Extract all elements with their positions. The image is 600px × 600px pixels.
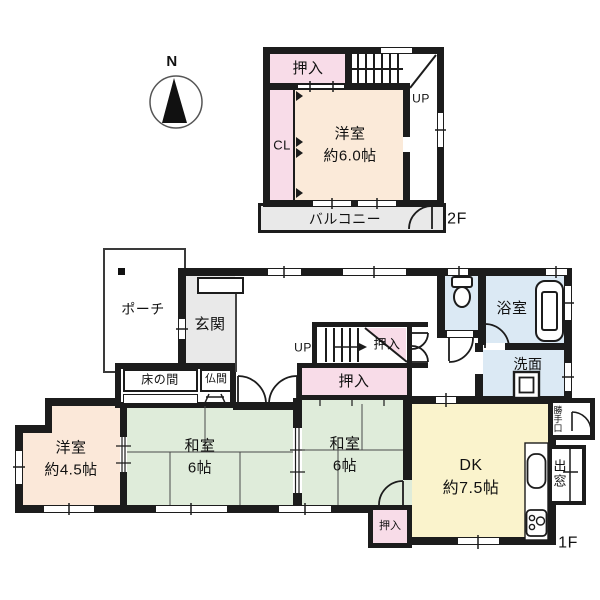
room-name: 和室 (329, 433, 360, 455)
room-size: 約7.5帖 (443, 477, 500, 500)
room-label-western-1f: 洋室 約4.5帖 (44, 437, 97, 481)
room-label-cl: CL (273, 137, 291, 156)
room-size: 約6.0帖 (323, 145, 376, 167)
room-size: 6帖 (329, 455, 360, 477)
shoe-cabinet (197, 277, 244, 294)
window (267, 268, 302, 276)
window (178, 318, 186, 340)
window (342, 268, 407, 276)
floor-plan: N 押入 CL 洋室 約6.0帖 UP バルコニー 2F ポーチ 玄関 床の間 … (0, 0, 600, 600)
room-size: 6帖 (184, 457, 215, 479)
room-label-dk: DK 約7.5帖 (443, 454, 500, 500)
floor-label-1f: 1F (558, 531, 578, 554)
balcony-label: バルコニー (309, 209, 381, 229)
wall (412, 322, 428, 327)
window (564, 285, 572, 321)
sliding-door-opening (120, 437, 127, 472)
room-label-japanese-west: 和室 6帖 (184, 435, 215, 479)
porch-label: ポーチ (121, 299, 165, 319)
stairs-up-label-1f: UP (294, 339, 312, 356)
bathroom-label: 浴室 (496, 298, 527, 320)
sliding-door-oshiire-2f (297, 84, 345, 89)
window (15, 450, 23, 485)
back-door-label: 勝手口 (552, 406, 565, 433)
wall (403, 396, 412, 480)
room-label-japanese-east: 和室 6帖 (329, 433, 360, 477)
door-opening-dk (436, 397, 456, 403)
room-name: 洋室 (323, 123, 376, 145)
tokonoma-label: 床の間 (141, 371, 179, 388)
room-name: 和室 (184, 435, 215, 457)
room-floor-stairs-2f (352, 54, 437, 83)
stairs-up-label-2f: UP (412, 90, 430, 107)
wall (263, 47, 444, 54)
room-label-western-2f: 洋室 約6.0帖 (323, 123, 376, 167)
room-name: 洋室 (44, 437, 97, 459)
window (357, 200, 397, 207)
window (155, 505, 228, 513)
window (380, 47, 413, 54)
wall (233, 402, 302, 410)
closet-center-label: 押入 (338, 371, 369, 393)
entrance-step-line (235, 291, 237, 372)
window (437, 112, 444, 148)
compass-north-label: N (166, 51, 177, 73)
doorway-japanese-east-dk (403, 480, 412, 505)
closet-by-stairs-label: 押入 (373, 336, 400, 355)
room-floor-western-1f (52, 406, 120, 433)
door-opening-washroom (475, 352, 483, 374)
closet-double-doors (412, 333, 428, 362)
window (545, 268, 568, 276)
floor-label-2f: 2F (447, 207, 467, 230)
room-name: DK (443, 454, 500, 477)
window (564, 362, 572, 392)
room-size: 約4.5帖 (44, 459, 97, 481)
porch-pillar (118, 268, 125, 275)
closet-south-label: 押入 (379, 519, 401, 535)
wall (437, 268, 445, 338)
window (447, 268, 469, 276)
wall (403, 396, 572, 404)
door-opening (403, 137, 410, 152)
compass-icon (150, 76, 202, 128)
wall (412, 363, 428, 368)
room-label-closet-2f: 押入 (292, 58, 323, 80)
window (312, 200, 352, 207)
butsuma-label: 仏間 (205, 372, 227, 388)
bay-window-label: 出窓 (550, 459, 569, 489)
wall (263, 200, 444, 207)
window (278, 505, 332, 513)
window (43, 505, 95, 513)
wall (478, 268, 486, 345)
wall (263, 47, 270, 207)
toilet-door-arc (449, 338, 473, 362)
wall (505, 343, 572, 350)
tokonoma-floor (123, 394, 198, 404)
window (457, 537, 500, 545)
wall (345, 47, 352, 90)
washroom-label: 洗面 (514, 354, 543, 374)
entrance-label: 玄関 (194, 314, 225, 336)
door-opening-toilet (447, 331, 473, 337)
wall (293, 398, 302, 428)
room-floor-toilet (445, 276, 478, 330)
hall-double-doors (238, 376, 297, 404)
